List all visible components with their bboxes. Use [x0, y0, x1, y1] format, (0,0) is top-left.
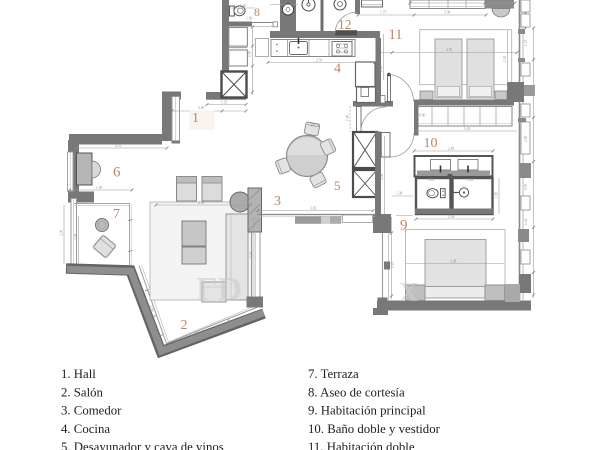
svg-text:3. Comedor: 3. Comedor: [61, 404, 122, 418]
svg-text:X: X: [399, 277, 419, 307]
svg-text:4: 4: [334, 62, 341, 77]
svg-text:9: 9: [400, 218, 408, 234]
svg-text:10: 10: [424, 136, 438, 151]
svg-text:ΓD: ΓD: [196, 271, 242, 308]
svg-text:2.40: 2.40: [198, 106, 204, 110]
svg-text:5.02: 5.02: [464, 127, 470, 131]
svg-text:2.70: 2.70: [316, 58, 322, 62]
svg-text:1: 1: [192, 111, 199, 126]
svg-text:5. Desayunador y cava de vinos: 5. Desayunador y cava de vinos: [61, 440, 224, 450]
svg-text:3.38: 3.38: [450, 259, 456, 263]
svg-text:1.44: 1.44: [524, 219, 528, 225]
svg-text:10. Baño doble y vestidor: 10. Baño doble y vestidor: [308, 422, 441, 436]
svg-text:1.60: 1.60: [246, 17, 252, 21]
svg-text:7. Terraza: 7. Terraza: [308, 367, 359, 381]
svg-text:8: 8: [254, 5, 260, 19]
svg-text:1.25: 1.25: [221, 100, 227, 104]
svg-text:1.90: 1.90: [524, 136, 528, 142]
svg-text:11: 11: [389, 27, 403, 43]
svg-text:Ø1.50: Ø1.50: [311, 124, 320, 128]
svg-text:1.06: 1.06: [428, 178, 434, 182]
svg-text:2: 2: [181, 318, 188, 333]
svg-text:1.65: 1.65: [494, 192, 498, 198]
svg-text:4.50: 4.50: [446, 48, 452, 52]
svg-text:1.30: 1.30: [96, 186, 102, 190]
svg-text:2. Salón: 2. Salón: [61, 385, 104, 399]
svg-text:9. Habitación principal: 9. Habitación principal: [308, 404, 426, 418]
svg-text:2.30: 2.30: [60, 230, 64, 236]
svg-text:2.98: 2.98: [380, 174, 384, 180]
svg-text:1.38: 1.38: [396, 192, 402, 196]
svg-text:4.02: 4.02: [198, 201, 204, 205]
svg-text:7: 7: [113, 207, 120, 222]
svg-text:1.90: 1.90: [248, 51, 252, 57]
svg-text:0.93: 0.93: [524, 184, 528, 190]
svg-text:1. Hall: 1. Hall: [61, 367, 96, 381]
svg-text:4. Cocina: 4. Cocina: [61, 422, 110, 436]
svg-text:8. Aseo de cortesía: 8. Aseo de cortesía: [308, 385, 405, 399]
svg-text:2.08: 2.08: [74, 234, 78, 240]
svg-text:2.38: 2.38: [444, 11, 450, 15]
svg-text:2.45: 2.45: [391, 262, 395, 268]
svg-text:6: 6: [113, 165, 121, 181]
svg-text:2.56: 2.56: [448, 215, 454, 219]
svg-text:0.60: 0.60: [419, 114, 425, 118]
svg-text:1.46: 1.46: [345, 115, 349, 121]
svg-text:4.76: 4.76: [115, 144, 121, 148]
svg-text:5: 5: [334, 178, 341, 193]
svg-text:3.82: 3.82: [310, 206, 316, 210]
svg-text:5.04: 5.04: [249, 252, 253, 258]
svg-text:1.75: 1.75: [380, 11, 386, 15]
svg-text:2.48: 2.48: [379, 66, 383, 72]
svg-text:1.45: 1.45: [503, 56, 507, 62]
svg-text:11. Habitación doble: 11. Habitación doble: [308, 440, 415, 450]
svg-text:2.85: 2.85: [448, 147, 454, 151]
svg-text:12: 12: [338, 17, 352, 32]
svg-text:1.34: 1.34: [467, 178, 473, 182]
svg-text:1.40: 1.40: [240, 4, 246, 8]
svg-text:1.47: 1.47: [524, 40, 528, 46]
svg-text:3: 3: [274, 194, 281, 209]
